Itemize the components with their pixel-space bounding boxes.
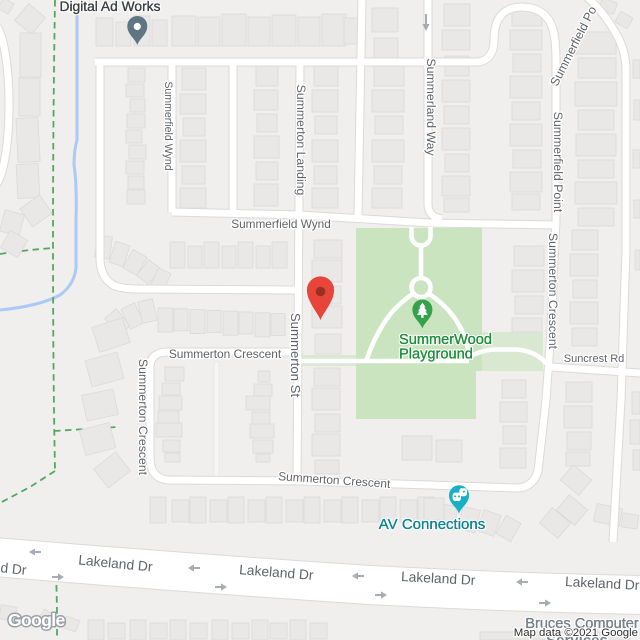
- svg-text:Summerfield Wynd: Summerfield Wynd: [162, 81, 174, 170]
- svg-text:Summerton Crescent: Summerton Crescent: [169, 347, 282, 361]
- svg-text:Google: Google: [8, 610, 66, 630]
- svg-text:Map data ©2021 Google: Map data ©2021 Google: [514, 627, 638, 639]
- svg-text:Summerton Crescent: Summerton Crescent: [136, 359, 150, 476]
- svg-text:Summerton Crescent: Summerton Crescent: [546, 233, 560, 350]
- svg-text:AV Connections: AV Connections: [379, 516, 485, 533]
- svg-text:Digital Ad Works: Digital Ad Works: [60, 0, 161, 14]
- svg-text:Playground: Playground: [399, 347, 473, 363]
- svg-text:Summerfield Point: Summerfield Point: [551, 112, 565, 213]
- svg-text:Summerton St: Summerton St: [288, 313, 303, 398]
- svg-text:Suncrest Rd: Suncrest Rd: [564, 353, 625, 365]
- svg-text:Summerfield Wynd: Summerfield Wynd: [231, 217, 331, 231]
- svg-text:Summerton Landing: Summerton Landing: [294, 85, 308, 196]
- svg-text:Summerland Way: Summerland Way: [424, 58, 438, 156]
